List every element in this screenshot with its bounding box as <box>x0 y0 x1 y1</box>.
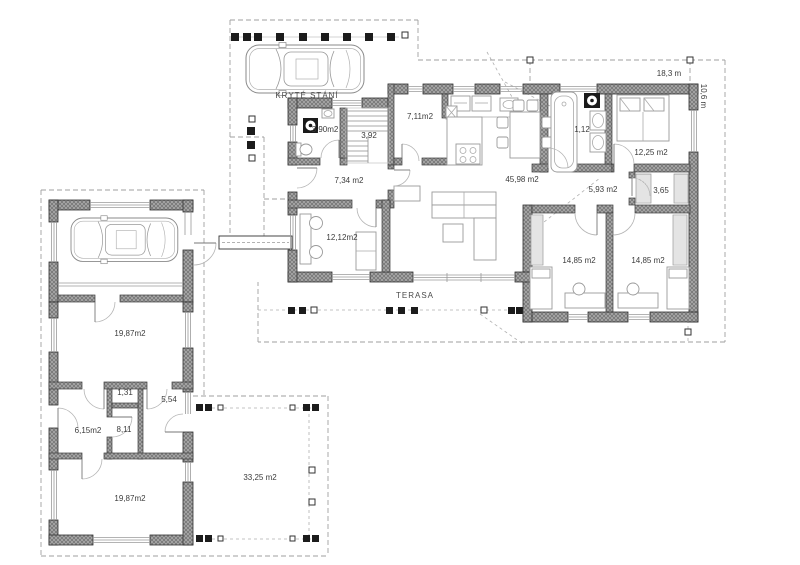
room-label-closet: 3,65 <box>653 187 669 195</box>
room-label-vestibule: 5,54 <box>161 396 177 404</box>
room-label-pantry: 7,11m2 <box>407 113 433 121</box>
car-garage <box>71 216 178 264</box>
dimension-depth: 10,6 m <box>699 84 707 108</box>
room-label-bathroom-small: 6,15m2 <box>75 427 102 435</box>
dimension-width: 18,3 m <box>657 70 681 78</box>
room-label-bedroom-master: 12,25 m2 <box>634 149 667 157</box>
carport-label: KRYTÉ STÁNÍ <box>275 92 338 100</box>
room-label-utility-wc: 3,90m2 <box>312 126 339 134</box>
room-label-bedroom-right: 14,85 m2 <box>631 257 664 265</box>
doors <box>58 140 650 479</box>
car-carport <box>246 43 364 96</box>
room-label-hall-lower: 19,87m2 <box>114 495 145 503</box>
room-label-bathroom: 1,12 <box>574 126 590 134</box>
room-label-living-kitchen: 45,98 m2 <box>505 176 538 184</box>
room-label-study: 12,12m2 <box>326 234 357 242</box>
room-label-terrace-south: 33,25 m2 <box>243 474 276 482</box>
walkway <box>219 236 292 249</box>
room-label-staircase: 3,92 <box>361 132 377 140</box>
room-label-hall-upper: 19,87m2 <box>114 330 145 338</box>
room-label-closet-small: 1,31 <box>117 389 133 397</box>
terrace-label: TERASA <box>396 292 434 300</box>
room-label-entry-hall: 7,34 m2 <box>335 177 364 185</box>
room-label-room-small: 8,11 <box>117 426 132 434</box>
floor-plan-drawing <box>0 0 800 565</box>
floor-plan-page: KRYTÉ STÁNÍ 3,90m2 3,92 7,11m2 7,34 m2 4… <box>0 0 800 565</box>
room-label-hallway: 5,93 m2 <box>589 186 618 194</box>
room-label-bedroom-left: 14,85 m2 <box>562 257 595 265</box>
